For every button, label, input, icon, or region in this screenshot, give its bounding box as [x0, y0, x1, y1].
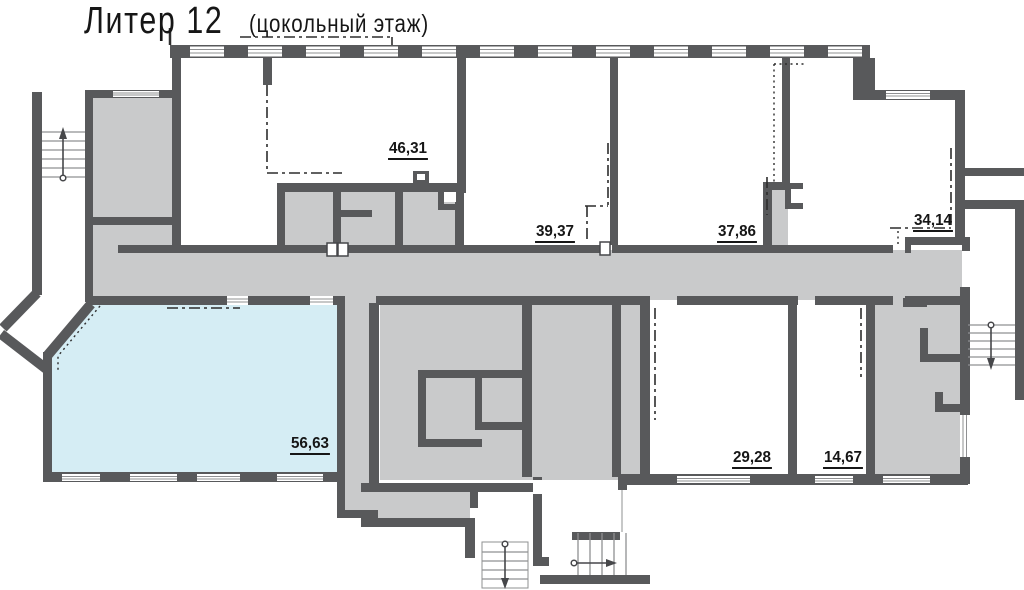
stair-start-marker	[60, 175, 66, 181]
area-label-46-31: 46,31	[388, 140, 428, 158]
stairs-exterior-left	[42, 127, 85, 181]
area-label-14-67: 14,67	[823, 449, 863, 467]
page-title: Литер 12	[84, 0, 223, 43]
area-label-34-14: 34,14	[913, 212, 953, 230]
right-arrow-icon	[606, 559, 617, 567]
area-label-29-28: 29,28	[732, 449, 772, 467]
up-arrow-icon	[59, 127, 67, 139]
stair-start-marker	[571, 560, 577, 566]
down-arrow-icon	[987, 358, 995, 370]
stair-start-marker	[988, 322, 994, 328]
floor-plan-drawing	[0, 0, 1024, 590]
area-label-39-37: 39,37	[535, 223, 575, 241]
area-label-56-63: 56,63	[290, 435, 330, 453]
stairs-exterior-right	[968, 322, 1015, 370]
area-label-37-86: 37,86	[717, 223, 757, 241]
floor-plan: Литер 12 (цокольный этаж) 46,31 39,37 37…	[0, 0, 1024, 590]
page-subtitle: (цокольный этаж)	[249, 10, 429, 39]
stair-start-marker	[502, 541, 508, 547]
